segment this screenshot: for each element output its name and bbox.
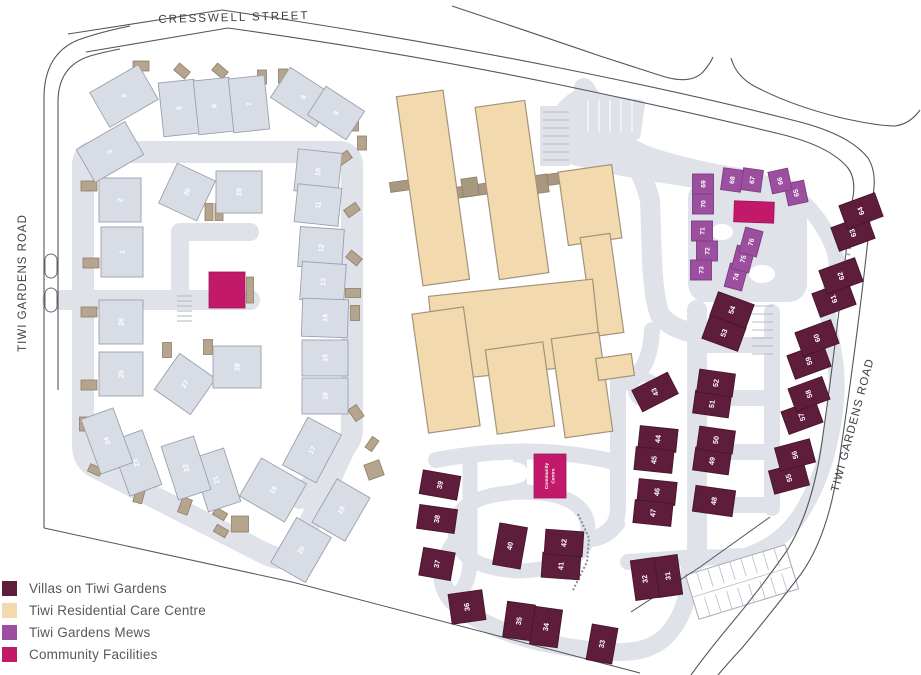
legend-item-community-facilities: Community Facilities	[2, 643, 206, 665]
villa-47: 47	[633, 500, 673, 527]
map-legend: Villas on Tiwi Gardens Tiwi Residential …	[2, 577, 206, 665]
building-15: 15	[302, 340, 348, 376]
community-facility	[209, 272, 245, 308]
mews-73: 73	[691, 260, 712, 280]
road-median	[45, 254, 57, 278]
garage-shed	[81, 380, 97, 390]
building-14: 14	[301, 298, 348, 338]
svg-text:13: 13	[320, 278, 328, 286]
svg-text:72: 72	[704, 247, 711, 255]
garage-shed	[163, 343, 172, 358]
garage-shed	[247, 277, 254, 303]
building-26: 26	[99, 300, 143, 344]
villa-56: 56	[775, 439, 816, 471]
svg-text:35: 35	[514, 616, 524, 625]
svg-text:40: 40	[505, 541, 515, 551]
svg-text:46: 46	[652, 487, 662, 496]
garage-shed	[174, 63, 191, 79]
svg-text:73: 73	[698, 266, 705, 274]
villa-37: 37	[419, 547, 455, 580]
svg-text:16: 16	[322, 392, 329, 400]
svg-text:11: 11	[315, 201, 323, 209]
building-13: 13	[300, 262, 347, 303]
villa-52: 52	[697, 369, 736, 397]
villa-62: 62	[819, 258, 863, 294]
svg-text:37: 37	[432, 559, 442, 569]
building-28: 28	[213, 346, 261, 388]
garage-shed	[358, 136, 367, 150]
traffic-island	[500, 462, 528, 484]
svg-text:50: 50	[711, 435, 721, 444]
building-4: 4	[90, 65, 158, 128]
svg-text:69: 69	[700, 180, 707, 188]
traffic-island	[749, 265, 775, 283]
legend-label-villas: Villas on Tiwi Gardens	[29, 581, 167, 596]
garage-shed	[81, 307, 97, 317]
garage-shed	[346, 289, 361, 298]
villa-36: 36	[448, 590, 486, 624]
svg-text:10: 10	[315, 168, 323, 177]
svg-text:49: 49	[707, 456, 717, 465]
building-5: 5	[158, 79, 199, 136]
svg-text:38: 38	[432, 514, 442, 523]
villa-39: 39	[419, 470, 461, 500]
svg-text:28: 28	[234, 363, 241, 371]
legend-item-care-centre: Tiwi Residential Care Centre	[2, 599, 206, 621]
svg-text:70: 70	[700, 200, 707, 208]
legend-label-care-centre: Tiwi Residential Care Centre	[29, 603, 206, 618]
community-facility: CommunityCentre	[534, 454, 566, 498]
garage-shed	[81, 181, 97, 191]
mews-71: 71	[692, 221, 713, 241]
svg-text:45: 45	[649, 455, 659, 464]
care-centre-building	[596, 354, 635, 381]
svg-text:71: 71	[699, 227, 706, 235]
legend-swatch-community-facilities	[2, 647, 17, 662]
street-outline	[731, 58, 920, 126]
villa-40: 40	[493, 523, 528, 569]
mews-72: 72	[697, 241, 718, 261]
svg-text:15: 15	[322, 354, 329, 362]
building-16: 16	[302, 378, 348, 414]
svg-text:33: 33	[597, 639, 607, 649]
care-centre-building	[485, 342, 554, 434]
svg-text:42: 42	[559, 539, 569, 548]
street-label-1: TIWI GARDENS ROAD	[17, 214, 29, 352]
mews-69: 69	[693, 174, 714, 194]
building-6: 6	[193, 77, 234, 134]
mews-66: 66	[768, 168, 792, 194]
building-22: 22	[161, 436, 211, 500]
building-27: 27	[154, 353, 215, 414]
svg-text:12: 12	[318, 244, 326, 252]
garage-shed	[204, 340, 213, 355]
garage-shed	[83, 258, 99, 268]
svg-text:Community: Community	[544, 462, 550, 489]
care-centre-building	[475, 100, 549, 279]
garage-shed	[205, 204, 213, 221]
building-7: 7	[228, 75, 269, 132]
legend-label-community-facilities: Community Facilities	[29, 647, 158, 662]
svg-text:41: 41	[556, 562, 566, 571]
road-median	[45, 288, 57, 312]
villa-38: 38	[417, 504, 458, 533]
garage-shed	[365, 436, 379, 451]
svg-text:14: 14	[322, 314, 329, 322]
mews-67: 67	[741, 168, 764, 193]
villa-33: 33	[586, 624, 618, 664]
villa-45: 45	[634, 447, 674, 474]
svg-text:26: 26	[118, 318, 125, 326]
villa-35: 35	[503, 601, 536, 641]
garage-shed	[364, 460, 385, 481]
building-29: 29	[216, 171, 262, 213]
legend-item-mews: Tiwi Gardens Mews	[2, 621, 206, 643]
building-11: 11	[294, 184, 342, 226]
building-25: 25	[99, 352, 143, 396]
building-2: 2	[99, 178, 141, 222]
legend-label-mews: Tiwi Gardens Mews	[29, 625, 150, 640]
svg-text:25: 25	[118, 370, 125, 378]
care-centre-building	[551, 332, 612, 438]
street-label-0: CRESSWELL STREET	[158, 10, 309, 26]
legend-swatch-mews	[2, 625, 17, 640]
villa-48: 48	[692, 485, 735, 516]
svg-text:48: 48	[709, 496, 719, 505]
villa-50: 50	[697, 426, 736, 454]
svg-text:29: 29	[236, 188, 243, 196]
svg-text:39: 39	[435, 480, 445, 490]
villa-64: 64	[839, 193, 883, 229]
legend-item-villas: Villas on Tiwi Gardens	[2, 577, 206, 599]
garage-shed	[232, 516, 249, 532]
villa-58: 58	[788, 377, 830, 412]
mews-70: 70	[693, 194, 714, 214]
svg-text:52: 52	[711, 378, 721, 387]
garage-shed	[212, 63, 229, 79]
mews-68: 68	[721, 168, 744, 193]
community-facility	[734, 201, 775, 223]
legend-swatch-care-centre	[2, 603, 17, 618]
svg-text:67: 67	[749, 176, 757, 185]
villa-32: 32	[630, 558, 659, 601]
care-centre-connector	[461, 177, 479, 197]
street-outline	[452, 6, 713, 80]
site-map-page: 1234567891011121314151617181920212223242…	[0, 0, 921, 675]
svg-text:68: 68	[729, 176, 737, 185]
garage-shed	[351, 306, 360, 321]
svg-text:1: 1	[119, 250, 126, 254]
site-map-svg: 1234567891011121314151617181920212223242…	[0, 0, 921, 675]
traffic-island	[711, 224, 733, 240]
svg-text:Centre: Centre	[551, 468, 557, 484]
svg-text:47: 47	[648, 508, 658, 517]
svg-text:31: 31	[663, 571, 673, 580]
svg-text:51: 51	[707, 399, 717, 408]
villa-42: 42	[544, 529, 584, 557]
building-1: 1	[101, 227, 143, 277]
svg-text:32: 32	[640, 574, 650, 583]
svg-text:2: 2	[117, 198, 124, 202]
care-centre-building	[558, 165, 622, 246]
legend-swatch-villas	[2, 581, 17, 596]
svg-text:36: 36	[462, 602, 472, 611]
